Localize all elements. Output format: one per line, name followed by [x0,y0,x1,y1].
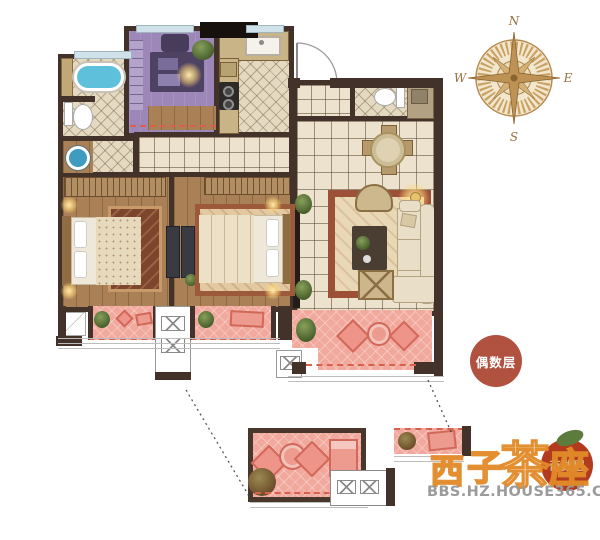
watermark-char-2: 子 [467,451,503,487]
compass-west-label: W [454,71,468,85]
study-window-line [130,125,216,127]
wall-lamp-glow [60,282,78,300]
kitchen-appliance [220,62,237,77]
plant-icon [295,280,312,300]
desk-item [158,58,178,70]
ac-unit-icon [161,316,185,331]
left-wall-end [58,306,66,340]
compass-south-label: S [510,130,518,144]
right-outer-wall [434,84,443,376]
round-basin-icon [66,146,90,170]
bed-blanket [199,215,254,283]
pillow-icon [266,249,279,277]
ac-unit-icon [360,480,379,494]
toilet-tank [396,86,405,108]
vanity-sink-icon [411,89,428,104]
table-dish [363,255,371,263]
desk-lamp-glow [176,62,202,88]
table-plant-icon [356,236,370,250]
window-strip [74,51,132,59]
ac-unit-icon [337,480,356,494]
bed-blanket [96,217,141,285]
balcony-corner-wall [292,362,306,374]
pillow-icon [74,221,87,248]
wall-lamp-glow [60,196,78,214]
tv-cabinet-icon [166,226,180,278]
wall-lamp-glow [264,282,282,300]
balcony-plant-icon [296,318,316,342]
strip-lounge-icon [427,430,457,452]
window-strip [136,25,194,33]
even-floor-badge: 偶数层 [470,335,522,387]
pillow-icon [266,219,279,247]
compass-east-label: E [563,71,573,85]
desk-chair-icon [161,34,189,52]
sofa-pillow [400,213,417,228]
kitchen-sink-icon [245,36,281,56]
balcony-plant-icon [94,311,110,328]
sofa-chaise [392,276,437,303]
bed-headboard [282,214,291,284]
ottoman-icon [358,270,394,300]
pillow-icon [74,251,87,278]
wall-lamp-glow [264,196,282,214]
window-sill [288,376,444,386]
bathtub-water [77,66,121,88]
balcony-plant-icon [198,311,214,328]
toilet-tank [64,102,73,126]
plant-icon [295,194,312,214]
strip-plant-icon [398,432,416,450]
toilet-icon [374,88,396,106]
sofa-armrest [399,200,421,212]
window-sill [58,338,280,350]
plant-icon [192,40,214,60]
compass-rose: N S E W [453,12,575,144]
floor-plan-image: N S E W 偶数层 奇数层 西 子 茶 座 BBS.HZ.HOUSE365.… [0,0,600,540]
watermark-site-url: BBS.HZ.HOUSE365.COM [427,484,600,500]
balcony-lounge-icon [230,310,265,328]
entry-wall [330,78,443,88]
balcony-table-icon [367,322,391,346]
entry-wall-stub [288,78,300,88]
wardrobe-icon [64,177,166,197]
bed-headboard [62,216,71,286]
compass-north-label: N [508,14,520,28]
window-strip [246,25,284,33]
watermark-char-4: 座 [549,449,589,489]
faucet-icon [259,40,264,45]
balcony-window-line [306,364,416,367]
wall-stub [278,306,292,340]
detail-wall-stub [386,468,395,506]
burner-icon [223,99,234,110]
balcony-corner-wall [414,362,443,374]
shaft-bottom-wall [155,372,191,380]
toilet-icon [73,104,93,130]
tv-cabinet-icon [181,226,195,278]
dining-table-icon [370,132,406,168]
wardrobe-icon [204,177,290,195]
burner-icon [223,86,234,97]
